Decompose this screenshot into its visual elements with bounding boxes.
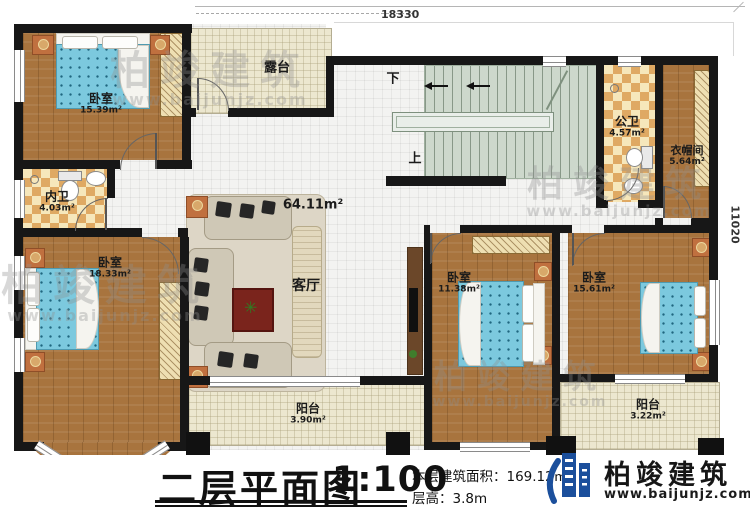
wall-segment [156,160,192,169]
wall-segment [560,225,572,233]
cushion-icon [194,281,210,297]
cushion-icon [239,203,255,219]
plant-icon [409,350,417,358]
door-leaf [155,133,157,169]
plant-icon: ✳ [244,300,260,316]
dimension-right: 11020 [729,205,742,243]
room-name: 阳台 [630,397,666,411]
stair-arrow-tail [474,85,490,87]
light-icon [30,175,39,184]
room-area: 5.64m² [669,157,705,168]
side-table-icon [186,196,208,218]
wardrobe-icon [159,282,182,380]
room-name: 卧室 [573,270,615,284]
wall-segment [552,225,560,450]
window-icon [14,338,25,372]
eave-line [334,22,734,23]
sliding-door-icon [210,376,360,387]
pillow-icon [694,286,706,316]
nightstand-icon [150,35,170,55]
cushion-icon [217,351,234,368]
wall-segment [566,56,618,65]
wall-segment [326,56,334,117]
window-icon [14,180,25,218]
label-balcony-left: 阳台 3.90m² [290,401,326,426]
room-name: 阳台 [290,401,326,415]
wall-segment [107,169,115,198]
label-inner-bath: 内卫 4.03m² [39,189,75,214]
wall-segment [360,376,430,385]
room-area: 4.57m² [609,129,645,140]
floor-plan-canvas: ✳ [0,0,750,513]
wall-segment [604,225,718,233]
wall-segment [188,108,196,117]
exterior-top [326,18,750,56]
label-bedroom-top-left: 卧室 15.39m² [80,91,122,116]
nightstand-icon [32,35,54,55]
cushion-icon [261,200,276,215]
label-bedroom-bottom-right: 卧室 15.61m² [573,270,615,295]
wall-segment [556,374,615,382]
floor-height-text: 层高：3.8m [412,487,487,507]
wall-segment [424,442,460,450]
window-icon [460,442,530,452]
wall-segment [180,237,189,442]
wall-segment [386,176,506,186]
wall-segment [228,108,334,117]
toilet-bowl-icon [626,148,643,167]
room-area: 11.38m² [438,285,480,296]
wall-segment [424,233,432,450]
pillow-icon [102,36,138,49]
wall-segment [460,225,560,233]
eave-line-right [733,22,734,56]
tv-icon [409,288,418,332]
label-cloakroom: 衣帽间 5.64m² [669,144,705,168]
room-name: 卧室 [80,91,122,105]
room-area: 3.22m² [630,412,666,423]
dimension-line-top [195,6,745,7]
door-leaf [430,233,432,263]
brand-logo-icon [542,447,600,509]
stair-direction-arrow [466,82,474,90]
nightstand-icon [25,352,45,372]
window-icon [543,56,566,67]
label-balcony-right: 阳台 3.22m² [630,397,666,422]
room-area: 15.39m² [80,106,122,117]
door-leaf [663,186,665,218]
bed-headboard [533,283,545,365]
label-public-bath: 公卫 4.57m² [609,114,645,139]
window-icon [14,50,25,102]
label-bedroom-bottom-left: 卧室 18.33m² [89,255,131,280]
label-living-area: 64.11m² [283,198,343,213]
wall-segment [326,56,543,65]
room-name: 内卫 [39,189,75,203]
wall-segment [182,24,191,169]
wardrobe-icon [472,236,550,254]
cushion-icon [215,201,232,218]
room-area: 18.33m² [89,270,131,281]
wall-segment [709,56,718,280]
label-terrace: 露台 [264,57,290,76]
window-icon [14,256,25,290]
room-name: 卧室 [89,255,131,269]
cushion-icon [193,257,209,273]
pillar [386,432,410,456]
wall-segment [14,160,120,169]
nightstand-icon [25,248,45,268]
title-block: 二层平面图 1:100 本层建筑面积：169.12㎡ 层高：3.8m 柏竣建筑 … [0,455,750,513]
room-area: 15.61m² [573,285,615,296]
pillar [186,432,210,456]
wall-segment [184,376,210,385]
wall-segment [655,56,663,208]
stair-direction-arrow [424,82,432,90]
nightstand-icon [692,352,710,371]
cushion-icon [193,305,209,321]
room-name: 公卫 [609,114,645,128]
title-underline [155,505,407,507]
window-icon [615,374,685,384]
pillow-icon [62,36,98,49]
stair-handrail-inner [396,116,550,128]
sink-icon [86,171,106,186]
pillow-icon [694,318,706,348]
wall-segment [685,374,718,382]
bed-sheet-fold [641,283,660,353]
room-area: 4.03m² [39,204,75,215]
pillow-icon [27,308,40,342]
stair-arrow-tail [432,85,448,87]
title-underline [155,500,407,503]
window-icon [709,280,720,345]
label-bedroom-bottom-mid: 卧室 11.38m² [438,270,480,295]
wall-segment [178,228,188,237]
room-area: 3.90m² [290,416,326,427]
door-leaf [572,233,574,265]
wall-segment [424,225,430,233]
dimension-tick [733,2,744,13]
wall-segment [641,56,718,65]
brand-url: www.baijunjz.com [604,487,750,502]
window-icon [618,56,641,67]
pillow-icon [27,272,40,306]
label-stairs-down: 下 [386,68,399,87]
door-leaf [197,78,199,110]
nightstand-icon [534,262,552,281]
wall-segment [596,56,604,208]
label-stairs-up: 上 [408,148,421,167]
door-leaf [105,198,107,230]
room-name: 卧室 [438,270,480,284]
wall-segment [14,24,192,33]
cushion-icon [243,353,259,369]
room-name: 衣帽间 [669,144,705,157]
label-living-room: 客厅 [292,275,320,295]
nightstand-icon [692,238,710,257]
dimension-top: 18330 [381,8,419,21]
light-icon [610,84,619,93]
wall-segment [604,200,608,208]
